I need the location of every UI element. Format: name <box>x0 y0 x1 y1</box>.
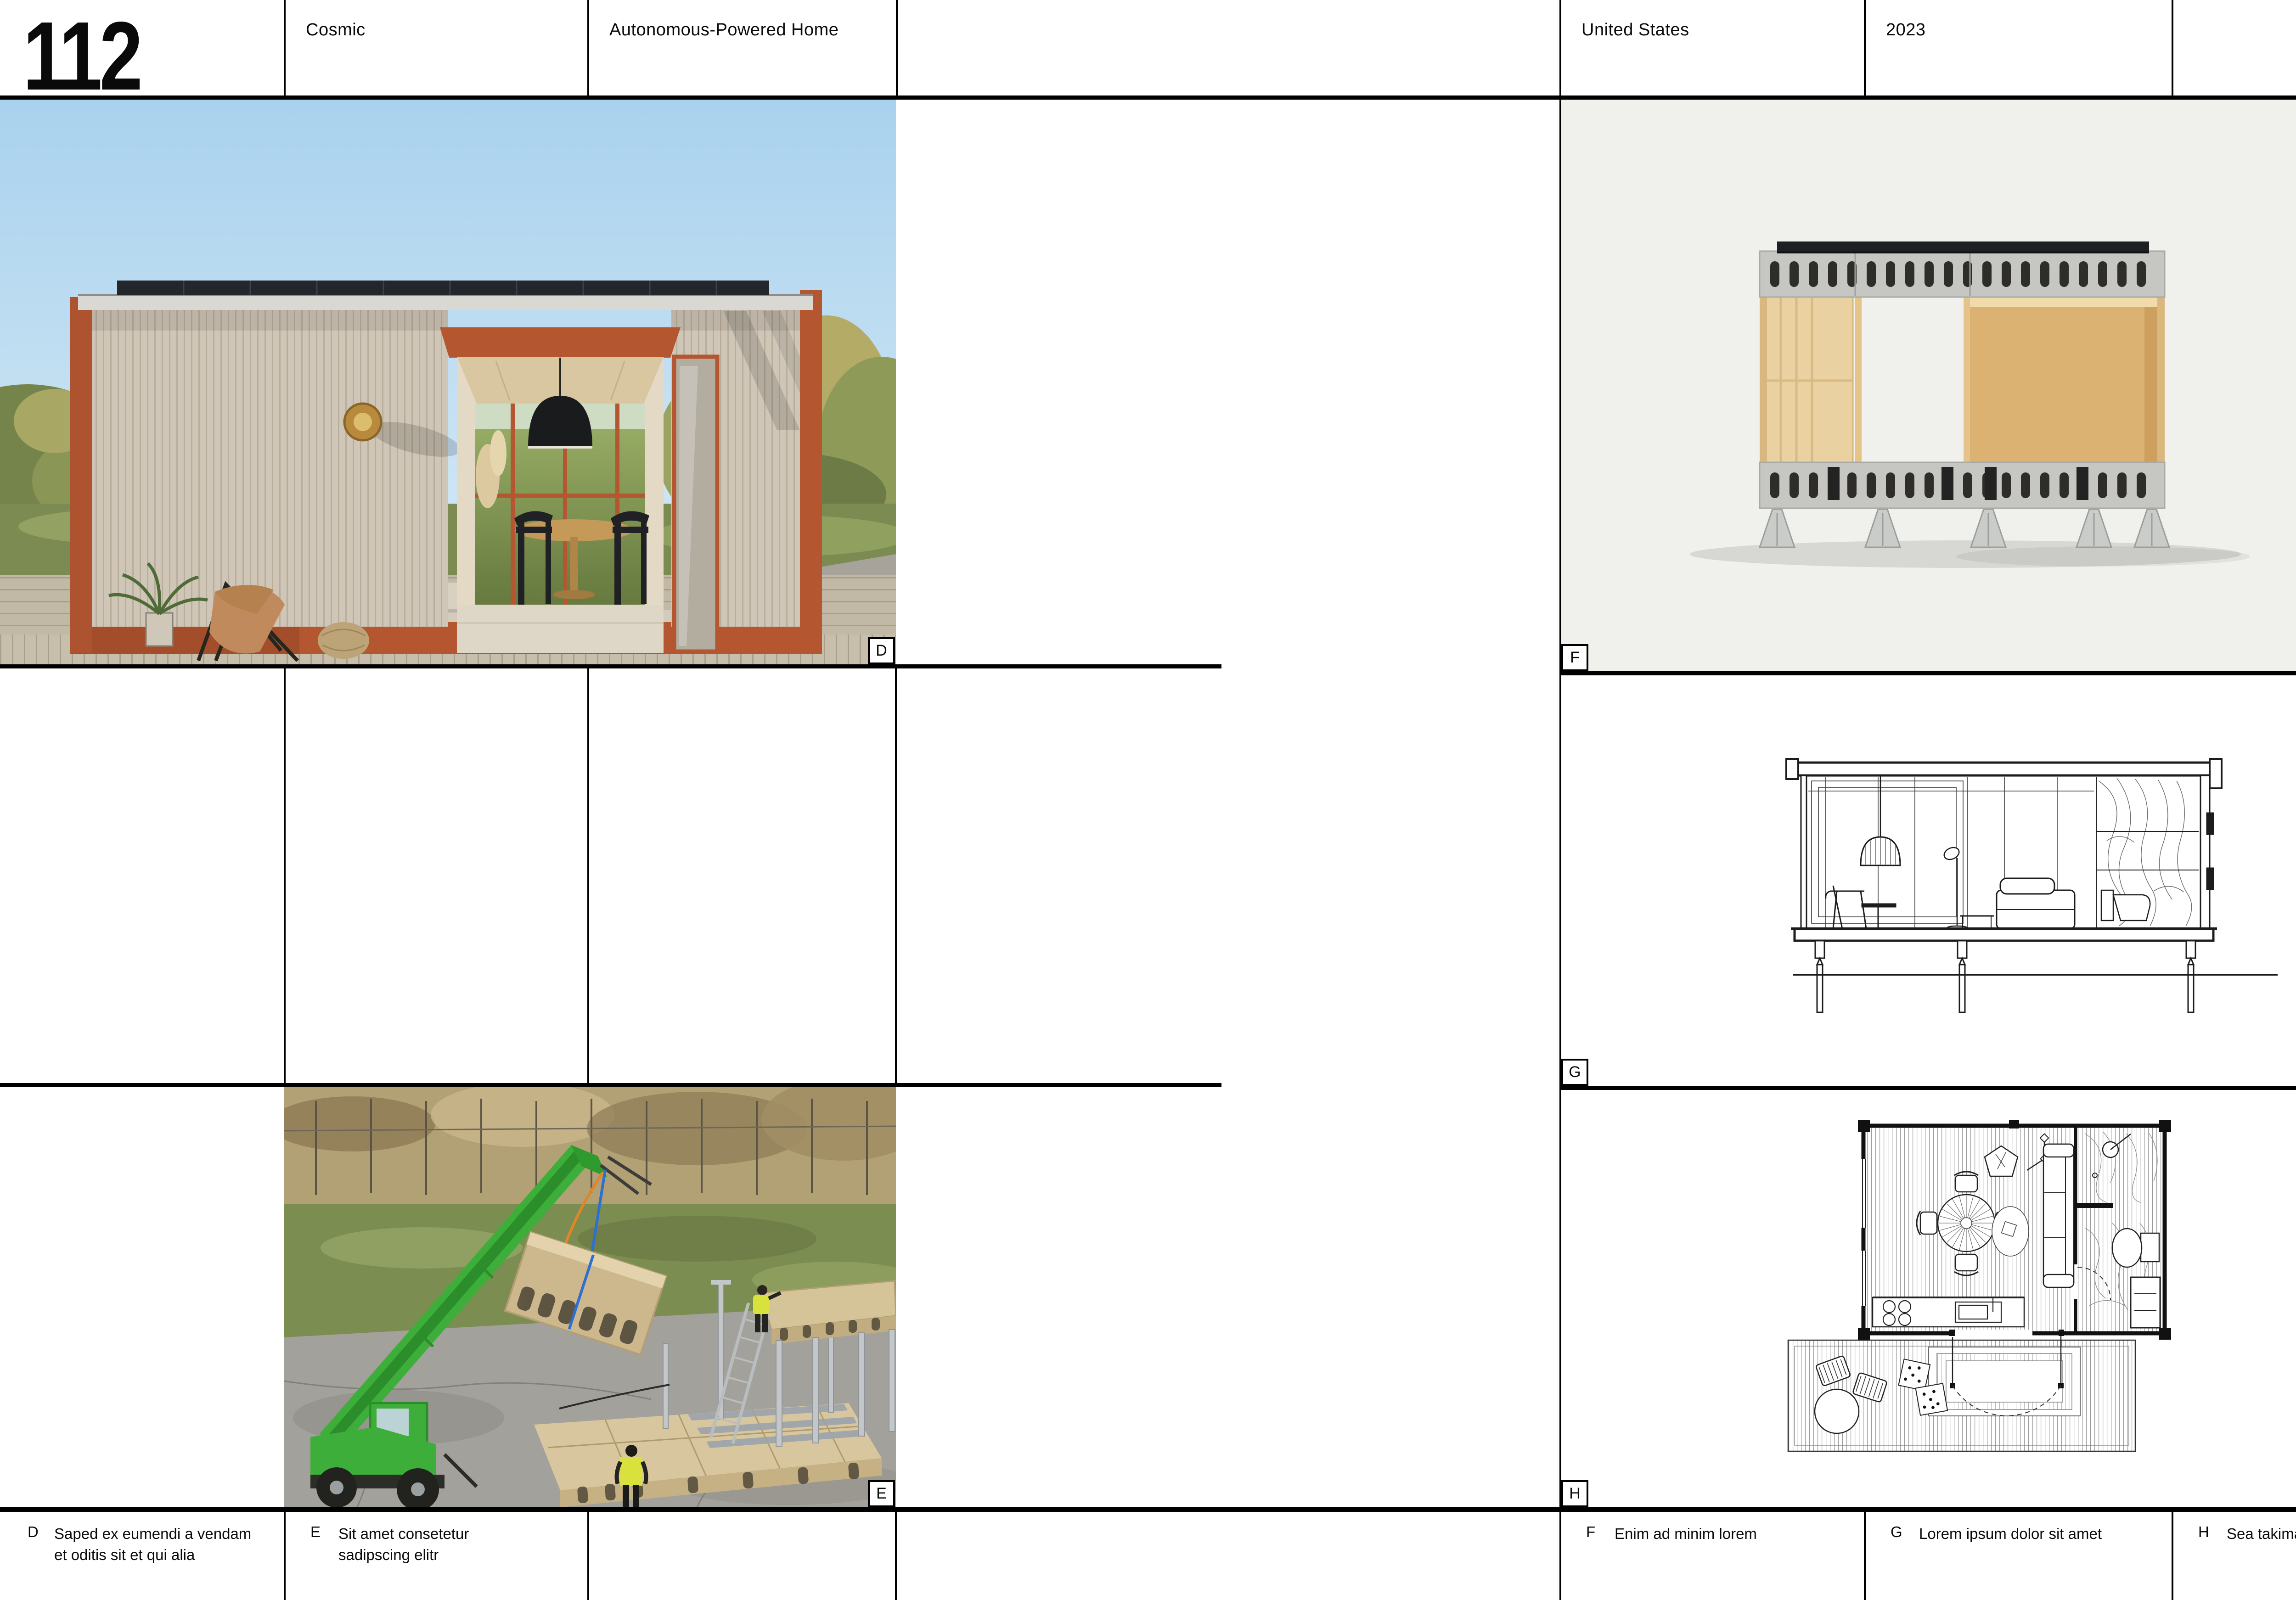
project-subtitle: Autonomous-Powered Home <box>609 20 838 40</box>
right-page-rule-2 <box>1560 1086 2296 1090</box>
figure-e-construction-photo <box>284 1087 896 1507</box>
caption-rule <box>0 1507 2296 1512</box>
figure-e-label-letter: E <box>876 1485 887 1503</box>
project-country: United States <box>1581 20 1689 40</box>
project-year: 2023 <box>1886 20 1926 40</box>
figure-f-label-letter: F <box>1570 649 1580 667</box>
book-spread: 112 Cosmic Autonomous-Powered Home Unite… <box>0 0 2296 1600</box>
caption-f-text: Enim ad minim lorem <box>1615 1523 1757 1544</box>
left-page-number: 112 <box>23 7 140 105</box>
caption-g-letter: G <box>1891 1523 1902 1541</box>
figure-f-label: F <box>1561 644 1588 671</box>
caption-g-line1: Lorem ipsum dolor sit amet <box>1919 1523 2102 1544</box>
figure-g-section-drawing <box>1561 675 2296 1086</box>
caption-divider <box>2172 1512 2173 1600</box>
caption-divider <box>895 1512 897 1600</box>
column-line <box>895 668 897 1083</box>
figure-h-floor-plan <box>1561 1090 2296 1507</box>
figure-g-label-letter: G <box>1569 1063 1581 1081</box>
caption-f-line1: Enim ad minim lorem <box>1615 1523 1757 1544</box>
header-divider <box>2172 0 2173 95</box>
figure-d-label: D <box>868 637 895 664</box>
header-divider <box>1864 0 1866 95</box>
figure-e-label: E <box>868 1480 895 1507</box>
figure-f-frame-render <box>1561 100 2296 671</box>
caption-divider <box>1559 1512 1561 1600</box>
caption-d-line1: Saped ex eumendi a vendam <box>54 1523 251 1544</box>
figure-d-label-letter: D <box>876 642 887 660</box>
caption-d-line2: et oditis sit et qui alia <box>54 1544 251 1566</box>
caption-divider <box>284 1512 286 1600</box>
caption-e-line2: sadipscing elitr <box>338 1544 469 1566</box>
figure-g-label: G <box>1561 1059 1588 1086</box>
figure-h-label: H <box>1561 1480 1588 1507</box>
caption-e-text: Sit amet consetetur sadipscing elitr <box>338 1523 469 1566</box>
header-divider <box>587 0 589 95</box>
right-page-rule-1 <box>1560 671 2296 675</box>
figure-d-exterior-photo <box>0 100 896 664</box>
caption-e-line1: Sit amet consetetur <box>338 1523 469 1544</box>
caption-d-letter: D <box>28 1523 39 1541</box>
caption-h-text: Sea takimata sanctus <box>2227 1523 2296 1544</box>
caption-d-text: Saped ex eumendi a vendam et oditis sit … <box>54 1523 251 1566</box>
caption-divider <box>587 1512 589 1600</box>
caption-h-letter: H <box>2198 1523 2209 1541</box>
header-divider <box>896 0 898 95</box>
column-line <box>284 668 286 1083</box>
caption-g-text: Lorem ipsum dolor sit amet <box>1919 1523 2102 1544</box>
left-page-rule-1 <box>0 664 1221 668</box>
header-divider <box>284 0 286 95</box>
caption-h-line1: Sea takimata sanctus <box>2227 1523 2296 1544</box>
column-line <box>587 668 589 1083</box>
figure-h-label-letter: H <box>1569 1485 1581 1503</box>
header-rule <box>0 95 2296 100</box>
caption-divider <box>1864 1512 1866 1600</box>
left-page-rule-2 <box>0 1083 1221 1087</box>
header-divider <box>1559 0 1561 95</box>
project-title: Cosmic <box>306 20 366 40</box>
caption-f-letter: F <box>1586 1523 1595 1541</box>
caption-e-letter: E <box>310 1523 321 1541</box>
